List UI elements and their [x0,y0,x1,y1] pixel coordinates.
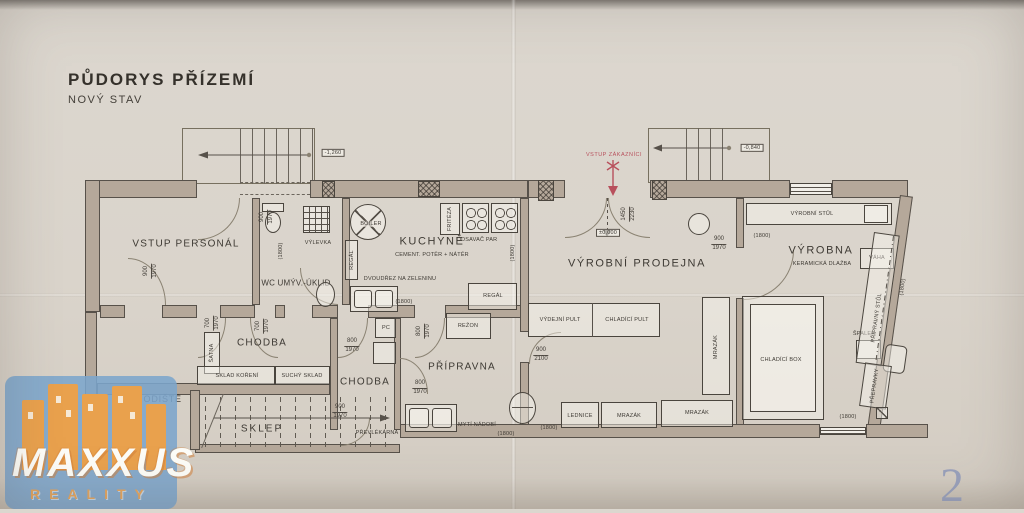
stairs-left-level: -1,260 [322,149,345,157]
kuchyne-floor-note: CEMENT. POTĚR + NÁTĚR [395,252,469,258]
label-pc: PC [382,325,390,331]
door-dim: 9001970 [143,263,159,278]
label-odsavac-par: ODSAVAČ PAR [457,237,498,243]
hidden-wall-dashed [240,194,310,195]
door-dim: 9002100 [533,347,548,363]
door-dim: 9001970 [332,404,347,420]
floor-drain-icon [876,407,888,419]
label-friteza: FRITÉZA [447,207,453,231]
door-dim: 8001970 [416,323,432,338]
wall [85,180,100,312]
wall [220,305,255,318]
customer-entrance-arrow [598,158,628,198]
stairs-right-treads [686,128,732,183]
stairs-left-direction-arrow [196,148,316,162]
entrance-centerline [607,198,608,232]
boiler-oval-line [512,407,533,408]
hidden-wall-dashed [240,182,310,183]
wall [650,180,790,198]
basement-stairs-arrow [212,410,394,426]
wall [85,180,197,198]
dim-1800: (1800) [839,414,856,420]
label-vylevka: VÝLEVKA [305,240,331,246]
door-dim: 8001970 [412,380,427,396]
dim-1800: (1800) [540,425,557,431]
door-swing [198,198,240,240]
dim-1800: (1800) [497,431,514,437]
stove-burners-icon [491,203,518,233]
label-regal-right: REGÁL [483,293,503,299]
photographed-floor-plan: { "title": { "line1": "PŮDORYS PŘÍZEMÍ",… [0,0,1024,509]
label-sklad-koreni: SKLAD KOŘENÍ [215,373,258,379]
dim-1800: (1800) [395,299,412,305]
vyrobna-floor-note: KERAMICKÁ DLAŽBA [793,261,852,267]
label-vyrobni-stul: VÝROBNÍ STŮL [791,211,834,217]
sink-bowl-icon [409,408,429,428]
label-rezon: REŽON [458,323,478,329]
label-mrazak: MRAZÁK [713,335,719,359]
stairs-right-level: -0,840 [741,144,764,152]
label-chladici-box: CHLADÍCÍ BOX [760,357,801,363]
wall-pier-hatch [322,181,335,198]
vylevka-sink-icon [303,206,330,233]
plan-title: PŮDORYS PŘÍZEMÍ [68,70,255,90]
boiler-oval-icon [509,392,536,424]
room-vstup-personal: VSTUP PERSONÁL [132,238,239,250]
window [820,427,866,435]
page-number: 2 [940,458,964,513]
stairs-right-direction-arrow [652,141,736,155]
label-myti-nadobi: MYTÍ NÁDOBÍ [458,422,496,428]
door-dim: 14502230 [621,206,637,221]
label-vydejni-pult: VÝDEJNÍ PULT [540,317,581,323]
wall [275,305,285,318]
logo-name: MAXXUS [12,440,278,486]
washbasin-icon [316,282,335,307]
window [790,183,832,195]
sink-bowl-icon [432,408,452,428]
label-mrazak: MRAZÁK [685,410,709,416]
plan-subtitle: NOVÝ STAV [68,94,143,107]
dim-1800: (1800) [278,242,284,259]
wall-pier-hatch [652,180,667,200]
wall [866,424,928,438]
counter-divider [592,303,593,337]
wall [162,305,197,318]
wall [832,180,908,198]
wall [736,198,744,248]
wall [100,305,125,318]
cabinet-box [373,342,396,364]
wall-pier-hatch [538,180,554,201]
door-dim: 9001970 [711,236,726,252]
label-chladici-pult: CHLADÍCÍ PULT [605,317,648,323]
dim-1800: (1800) [753,233,770,239]
door-dim: 9001970 [259,209,275,224]
door-dim: 7001970 [205,315,221,330]
sink-bowl-icon [375,290,393,308]
table-box [864,205,888,223]
label-satna: ŠATNA [209,344,215,363]
logo-subtitle: REALITY [30,486,153,502]
label-boiler: BOILER [360,221,381,227]
room-chodba: CHODBA [237,337,287,349]
column-icon [688,213,710,235]
label-lednice: LEDNICE [567,413,592,419]
dim-1800: (1800) [510,244,516,261]
wall-pier-hatch [418,181,440,197]
room-pripravna: PŘÍPRAVNA [428,361,496,373]
label-regal-left: REGÁL [349,250,355,270]
door-dim: 7001970 [255,318,271,333]
label-suchy-sklad: SUCHÝ SKLAD [281,373,322,379]
room-vyrobni-prodejna: VÝROBNÍ PRODEJNA [568,258,706,271]
room-kuchyne: KUCHYNĚ [400,236,465,249]
door-dim: 8001970 [344,338,359,354]
label-dvoudrez: DVOUDŘEZ NA ZELENINU [364,276,436,282]
label-mrazak: MRAZÁK [617,413,641,419]
level-zero: ±0,000 [596,229,620,237]
sink-bowl-icon [354,290,372,308]
room-chodba2: CHODBA [340,376,390,388]
room-vyrobna: VÝROBNA [789,245,854,258]
stove-burners-icon [462,203,489,233]
